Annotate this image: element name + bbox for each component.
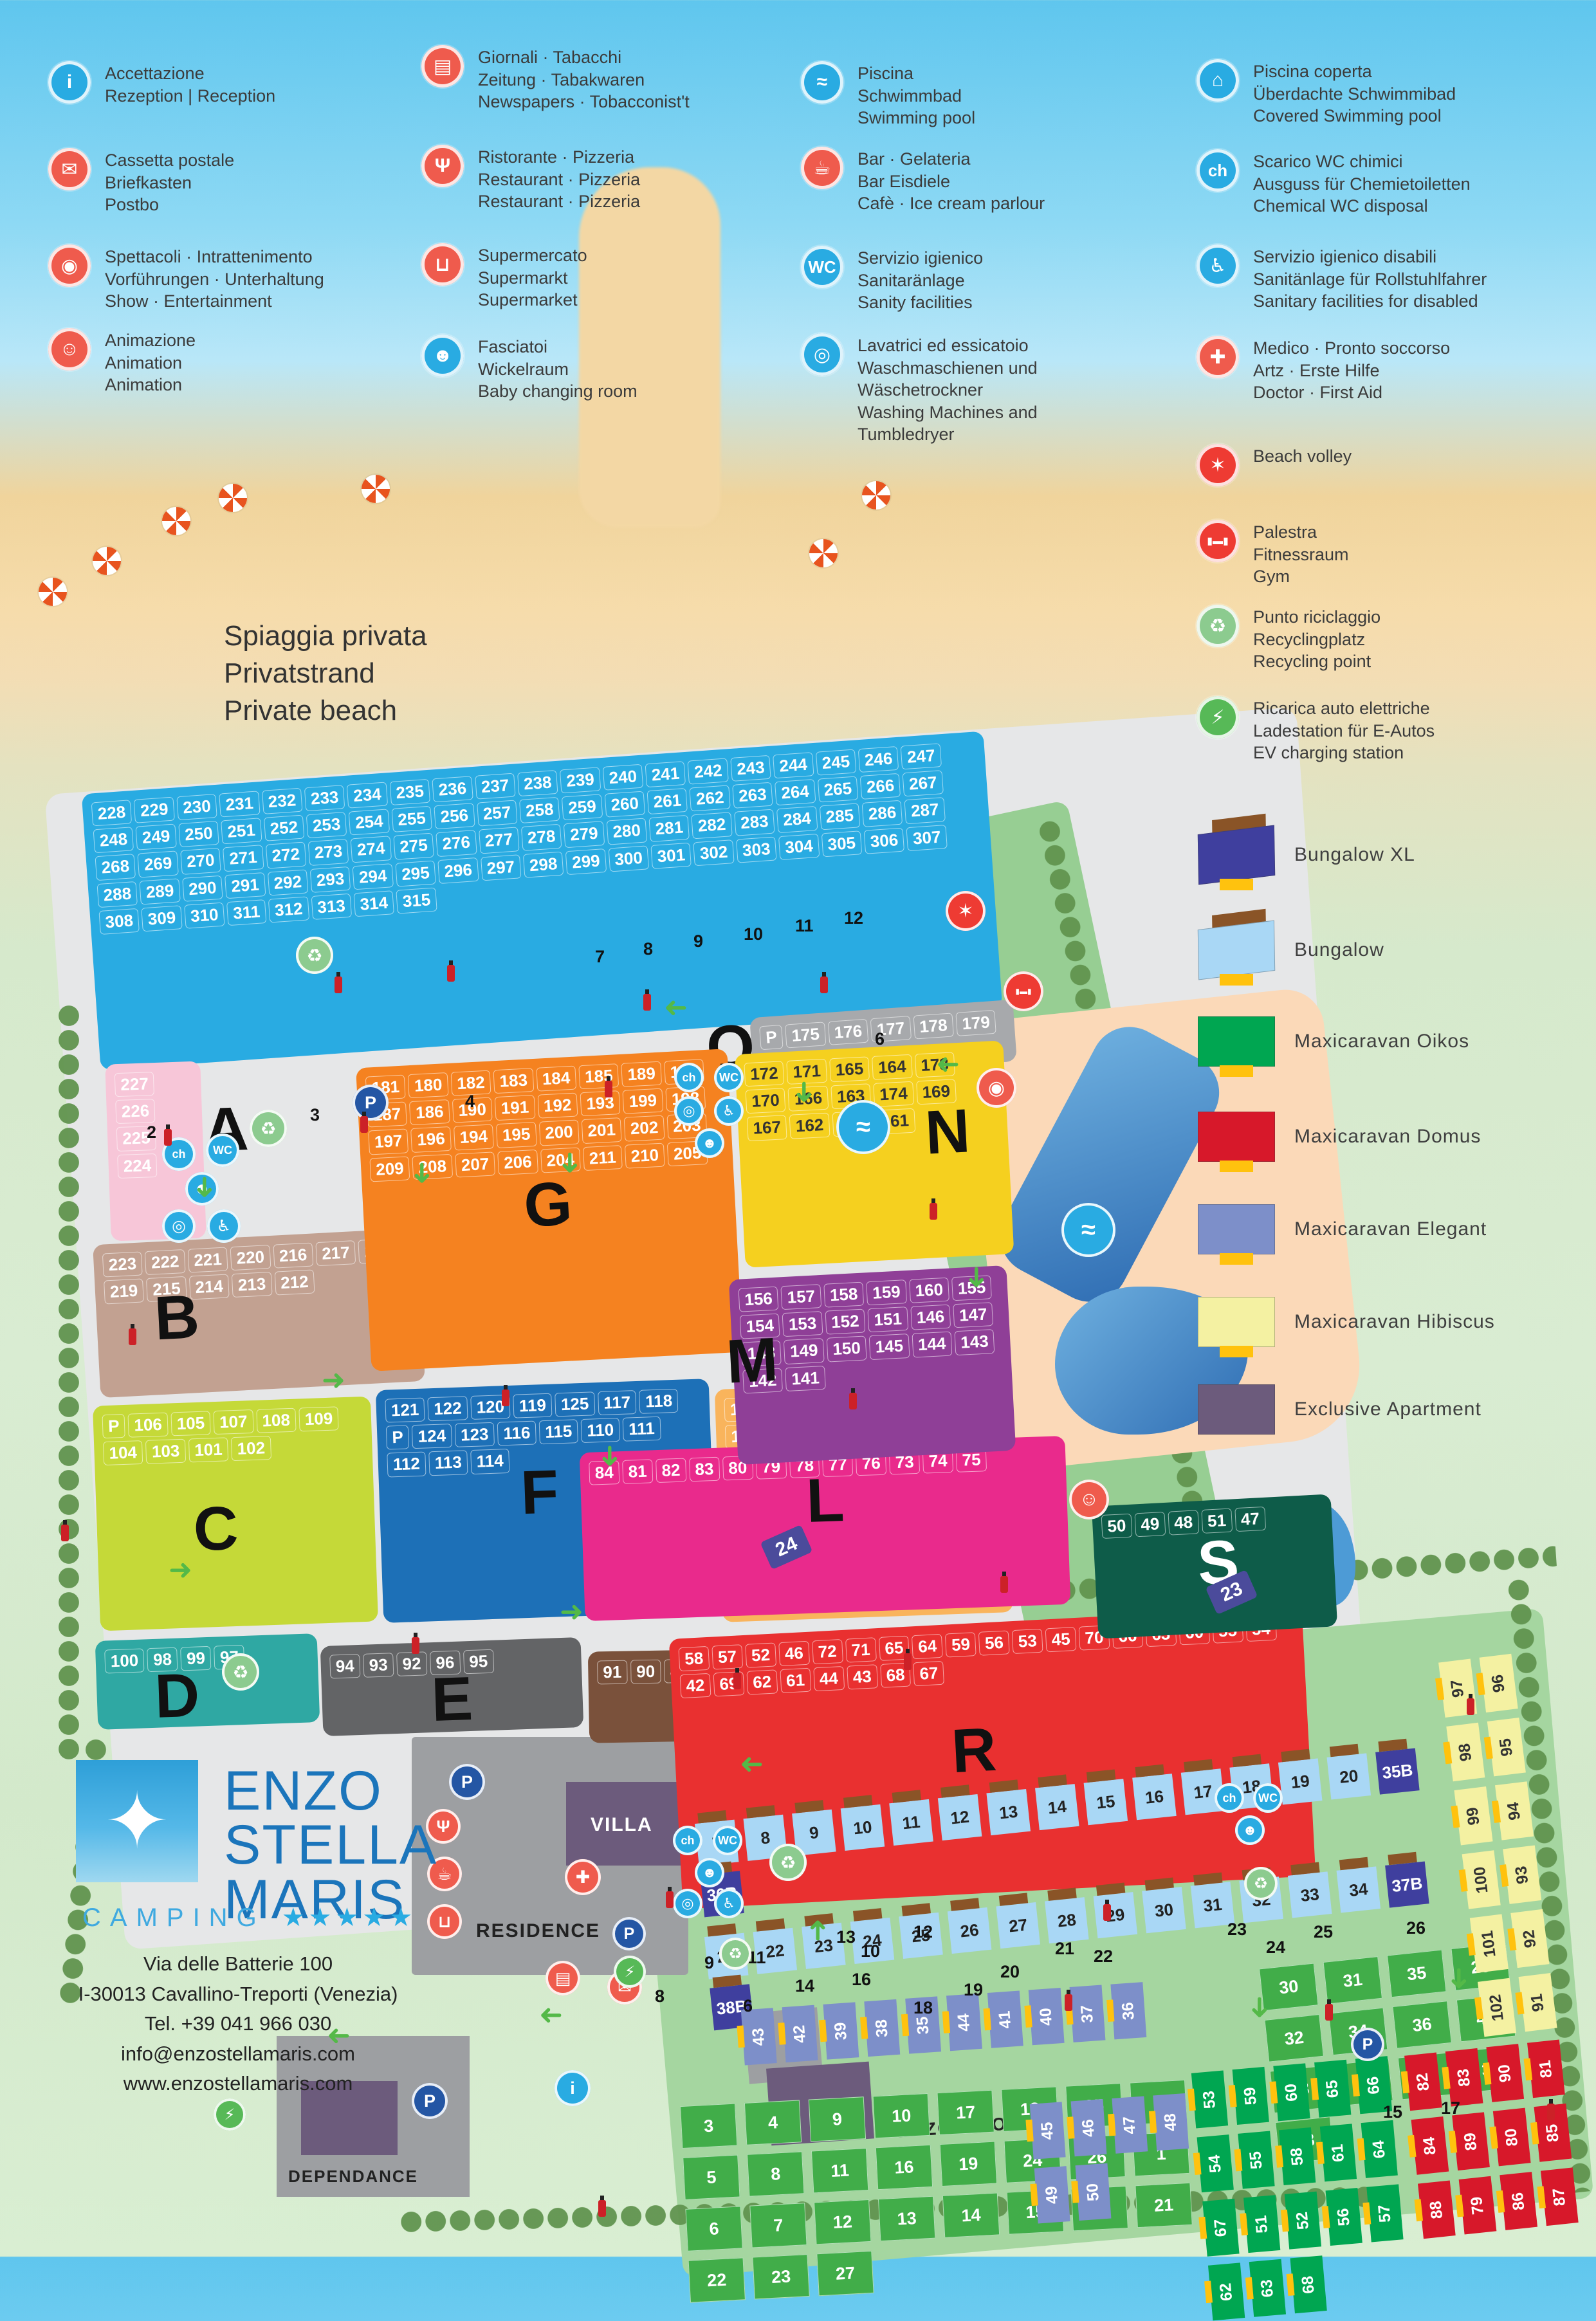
plot-290[interactable]: 290 xyxy=(182,875,223,901)
plot-223[interactable]: 223 xyxy=(102,1251,143,1277)
unit-91[interactable]: 91 xyxy=(1519,1973,1557,2032)
plot-110[interactable]: 110 xyxy=(581,1418,620,1443)
unit-13[interactable]: 13 xyxy=(986,1789,1031,1835)
unit-29[interactable]: 29 xyxy=(1094,1892,1138,1938)
plot-147[interactable]: 147 xyxy=(953,1302,993,1328)
recycle-icon[interactable]: ♻ xyxy=(1244,1867,1278,1900)
plot-217[interactable]: 217 xyxy=(315,1240,356,1266)
plot-279[interactable]: 279 xyxy=(564,821,605,847)
plot-152[interactable]: 152 xyxy=(825,1309,865,1335)
plot-115[interactable]: 115 xyxy=(539,1419,578,1444)
plot-47[interactable]: 47 xyxy=(1234,1507,1266,1532)
unit-5[interactable]: 5 xyxy=(683,2155,740,2200)
plot-61[interactable]: 61 xyxy=(780,1668,811,1694)
plot-53[interactable]: 53 xyxy=(1012,1629,1043,1655)
plot-245[interactable]: 245 xyxy=(816,749,857,776)
plot-259[interactable]: 259 xyxy=(562,794,603,820)
plot-251[interactable]: 251 xyxy=(221,818,262,844)
plot-310[interactable]: 310 xyxy=(184,902,225,928)
unit-86[interactable]: 86 xyxy=(1500,2172,1537,2230)
animation-icon[interactable]: ☺ xyxy=(1069,1480,1109,1519)
plot-194[interactable]: 194 xyxy=(454,1124,494,1150)
unit-30[interactable]: 30 xyxy=(1142,1887,1186,1933)
unit-12[interactable]: 12 xyxy=(938,1794,982,1840)
plot-308[interactable]: 308 xyxy=(98,908,140,935)
plot-90[interactable]: 90 xyxy=(630,1660,661,1684)
plot-107[interactable]: 107 xyxy=(214,1409,254,1435)
plot-172[interactable]: 172 xyxy=(744,1061,784,1087)
unit-9[interactable]: 9 xyxy=(809,2096,866,2142)
unit-61[interactable]: 61 xyxy=(1320,2124,1357,2181)
plot-186[interactable]: 186 xyxy=(409,1099,450,1125)
plot-214[interactable]: 214 xyxy=(189,1274,230,1300)
plot-104[interactable]: 104 xyxy=(103,1440,143,1465)
unit-8[interactable]: 8 xyxy=(747,2151,804,2196)
plot-165[interactable]: 165 xyxy=(829,1056,870,1082)
unit-32[interactable]: 32 xyxy=(1264,2014,1323,2062)
plot-293[interactable]: 293 xyxy=(310,866,351,892)
unit-101[interactable]: 101 xyxy=(1470,1914,1509,1973)
plot-116[interactable]: 116 xyxy=(497,1421,537,1446)
plot-206[interactable]: 206 xyxy=(497,1149,538,1175)
plot-112[interactable]: 112 xyxy=(387,1452,426,1477)
unit-99[interactable]: 99 xyxy=(1454,1786,1492,1845)
unit-89[interactable]: 89 xyxy=(1452,2112,1490,2170)
unit-94[interactable]: 94 xyxy=(1495,1781,1534,1840)
parking-icon[interactable]: P xyxy=(612,1917,646,1950)
unit-52[interactable]: 52 xyxy=(1285,2192,1321,2250)
plot-253[interactable]: 253 xyxy=(306,812,347,838)
plot-193[interactable]: 193 xyxy=(580,1090,620,1116)
unit-4[interactable]: 4 xyxy=(744,2100,802,2145)
plot-106[interactable]: 106 xyxy=(128,1413,169,1438)
unit-84[interactable]: 84 xyxy=(1411,2116,1449,2175)
unit-37[interactable]: 37 xyxy=(1070,1985,1106,2042)
unit-60[interactable]: 60 xyxy=(1273,2063,1310,2121)
parking-icon[interactable]: P xyxy=(353,1085,389,1121)
plot-96[interactable]: 96 xyxy=(430,1651,461,1676)
plot-289[interactable]: 289 xyxy=(140,878,181,904)
recycle-icon[interactable]: ♻ xyxy=(222,1653,259,1691)
plot-216[interactable]: 216 xyxy=(273,1243,313,1269)
plot-111[interactable]: 111 xyxy=(623,1417,661,1442)
unit-13[interactable]: 13 xyxy=(878,2196,935,2241)
plot-288[interactable]: 288 xyxy=(96,881,138,907)
plot-313[interactable]: 313 xyxy=(311,894,352,920)
unit-16[interactable]: 16 xyxy=(1132,1774,1177,1820)
unit-36[interactable]: 36 xyxy=(1392,2001,1451,2049)
plot-256[interactable]: 256 xyxy=(434,803,475,829)
plot-282[interactable]: 282 xyxy=(692,812,733,839)
plot-273[interactable]: 273 xyxy=(308,839,349,865)
unit-19[interactable]: 19 xyxy=(1278,1758,1323,1804)
unit-95[interactable]: 95 xyxy=(1487,1718,1526,1776)
wc-icon[interactable]: WC xyxy=(714,1063,744,1092)
plot-271[interactable]: 271 xyxy=(223,845,264,872)
plot-229[interactable]: 229 xyxy=(134,797,175,823)
unit-40[interactable]: 40 xyxy=(1029,1988,1065,2045)
plot-272[interactable]: 272 xyxy=(265,842,306,868)
plot-228[interactable]: 228 xyxy=(91,800,133,826)
plot-143[interactable]: 143 xyxy=(954,1329,995,1355)
unit-96[interactable]: 96 xyxy=(1480,1654,1518,1712)
plot-291[interactable]: 291 xyxy=(225,872,266,899)
plot-215[interactable]: 215 xyxy=(146,1276,187,1302)
plot-113[interactable]: 113 xyxy=(428,1451,468,1476)
plot-221[interactable]: 221 xyxy=(187,1247,228,1272)
plot-175[interactable]: 175 xyxy=(785,1022,826,1048)
unit-93[interactable]: 93 xyxy=(1503,1845,1541,1904)
plot-71[interactable]: 71 xyxy=(845,1637,877,1663)
plot-160[interactable]: 160 xyxy=(909,1278,949,1303)
unit-10[interactable]: 10 xyxy=(873,2093,930,2138)
plot-265[interactable]: 265 xyxy=(817,776,858,803)
plot-276[interactable]: 276 xyxy=(436,830,477,856)
plot-125[interactable]: 125 xyxy=(555,1391,595,1417)
plot-124[interactable]: 124 xyxy=(412,1424,452,1449)
unit-53[interactable]: 53 xyxy=(1191,2070,1228,2128)
pool-icon[interactable]: ≈ xyxy=(836,1100,890,1154)
plot-257[interactable]: 257 xyxy=(477,800,518,827)
unit-49[interactable]: 49 xyxy=(1034,2166,1070,2223)
plot-164[interactable]: 164 xyxy=(872,1054,912,1080)
unit-27[interactable]: 27 xyxy=(996,1902,1040,1949)
plot-254[interactable]: 254 xyxy=(349,809,390,836)
unit-59[interactable]: 59 xyxy=(1233,2067,1269,2125)
plot-57[interactable]: 57 xyxy=(711,1644,743,1670)
plot-98[interactable]: 98 xyxy=(147,1647,178,1673)
zone-N[interactable]: 1721711651641731701661631741691671621681… xyxy=(735,1040,1014,1267)
plot-239[interactable]: 239 xyxy=(560,767,601,793)
unit-11[interactable]: 11 xyxy=(889,1799,933,1846)
plot-94[interactable]: 94 xyxy=(329,1654,360,1679)
plot-242[interactable]: 242 xyxy=(688,758,729,784)
plot-300[interactable]: 300 xyxy=(608,845,649,872)
baby-icon[interactable]: ☻ xyxy=(695,1128,724,1158)
unit-81[interactable]: 81 xyxy=(1527,2039,1565,2098)
plot-178[interactable]: 178 xyxy=(913,1013,954,1039)
plot-224[interactable]: 224 xyxy=(117,1153,158,1179)
plot-101[interactable]: 101 xyxy=(188,1438,229,1463)
laundry-icon[interactable]: ◎ xyxy=(673,1889,702,1918)
plot-305[interactable]: 305 xyxy=(821,830,862,857)
unit-7[interactable]: 7 xyxy=(749,2203,807,2248)
plot-150[interactable]: 150 xyxy=(826,1336,867,1362)
plot-303[interactable]: 303 xyxy=(736,836,777,863)
laundry-icon[interactable]: ◎ xyxy=(674,1096,704,1126)
parking-icon[interactable]: P xyxy=(449,1764,485,1800)
recycle-icon[interactable]: ♻ xyxy=(296,937,333,974)
plot-153[interactable]: 153 xyxy=(782,1311,823,1337)
plot-191[interactable]: 191 xyxy=(495,1095,535,1121)
laundry-icon[interactable]: ◎ xyxy=(162,1209,196,1243)
plot-169[interactable]: 169 xyxy=(916,1079,957,1105)
plot-148[interactable]: 148 xyxy=(741,1341,782,1366)
plot-42[interactable]: 42 xyxy=(680,1673,711,1699)
plot-277[interactable]: 277 xyxy=(479,827,520,854)
plot-244[interactable]: 244 xyxy=(773,752,814,778)
plot-95[interactable]: 95 xyxy=(463,1649,494,1674)
unit-39[interactable]: 39 xyxy=(823,2002,859,2059)
plot-283[interactable]: 283 xyxy=(734,809,775,836)
unit-6[interactable]: 6 xyxy=(685,2206,742,2251)
unit-44[interactable]: 44 xyxy=(946,1994,982,2051)
plot-52[interactable]: 52 xyxy=(745,1642,776,1668)
plot-266[interactable]: 266 xyxy=(860,773,901,800)
plot-108[interactable]: 108 xyxy=(256,1408,297,1433)
show-icon[interactable]: ◉ xyxy=(977,1068,1016,1108)
plot-56[interactable]: 56 xyxy=(978,1630,1010,1656)
chemical-icon[interactable]: ch xyxy=(1215,1783,1244,1813)
plot-184[interactable]: 184 xyxy=(536,1066,576,1092)
plot-199[interactable]: 199 xyxy=(623,1088,663,1114)
unit-46[interactable]: 46 xyxy=(1071,2099,1107,2156)
unit-67[interactable]: 67 xyxy=(1202,2199,1239,2257)
unit-62[interactable]: 62 xyxy=(1208,2262,1245,2320)
unit-92[interactable]: 92 xyxy=(1510,1909,1549,1968)
plot-278[interactable]: 278 xyxy=(521,824,562,850)
plot-292[interactable]: 292 xyxy=(267,869,308,895)
unit-48[interactable]: 48 xyxy=(1153,2093,1189,2151)
volley-icon[interactable]: ✶ xyxy=(946,891,986,931)
unit-54[interactable]: 54 xyxy=(1197,2134,1234,2192)
plot-P[interactable]: P xyxy=(102,1414,126,1438)
unit-55[interactable]: 55 xyxy=(1238,2131,1274,2189)
unit-35[interactable]: 35 xyxy=(1387,1950,1446,1998)
disabled-icon[interactable]: ♿ xyxy=(207,1209,241,1243)
unit-16[interactable]: 16 xyxy=(876,2145,933,2190)
pool-icon[interactable]: ≈ xyxy=(1061,1203,1115,1257)
plot-P[interactable]: P xyxy=(386,1426,410,1450)
plot-258[interactable]: 258 xyxy=(519,797,560,823)
plot-62[interactable]: 62 xyxy=(746,1670,778,1696)
plot-197[interactable]: 197 xyxy=(368,1129,408,1155)
unit-17[interactable]: 17 xyxy=(937,2090,994,2135)
unit-42[interactable]: 42 xyxy=(782,2005,818,2062)
plot-46[interactable]: 46 xyxy=(778,1641,810,1667)
plot-299[interactable]: 299 xyxy=(565,849,607,875)
plot-154[interactable]: 154 xyxy=(740,1314,780,1339)
plot-294[interactable]: 294 xyxy=(353,863,394,890)
plot-207[interactable]: 207 xyxy=(455,1151,495,1177)
unit-35B[interactable]: 35B xyxy=(1375,1748,1420,1794)
plot-263[interactable]: 263 xyxy=(732,782,773,809)
plot-162[interactable]: 162 xyxy=(789,1113,830,1139)
plot-118[interactable]: 118 xyxy=(639,1389,679,1414)
plot-222[interactable]: 222 xyxy=(145,1249,185,1275)
chemical-icon[interactable]: ch xyxy=(673,1826,702,1855)
plot-45[interactable]: 45 xyxy=(1045,1627,1077,1653)
plot-237[interactable]: 237 xyxy=(475,773,516,800)
plot-149[interactable]: 149 xyxy=(784,1338,824,1364)
unit-56[interactable]: 56 xyxy=(1326,2188,1362,2246)
plot-232[interactable]: 232 xyxy=(262,788,303,814)
wc-icon[interactable]: WC xyxy=(206,1133,239,1167)
plot-306[interactable]: 306 xyxy=(864,827,905,854)
plot-119[interactable]: 119 xyxy=(513,1393,552,1418)
unit-19[interactable]: 19 xyxy=(940,2142,997,2187)
wc-icon[interactable]: WC xyxy=(1253,1783,1283,1813)
wc-icon[interactable]: WC xyxy=(713,1826,742,1855)
plot-230[interactable]: 230 xyxy=(176,794,217,820)
unit-102[interactable]: 102 xyxy=(1478,1978,1516,2037)
unit-37B[interactable]: 37B xyxy=(1385,1861,1429,1907)
plot-174[interactable]: 174 xyxy=(873,1081,913,1107)
plot-285[interactable]: 285 xyxy=(819,803,860,830)
plot-83[interactable]: 83 xyxy=(689,1457,720,1482)
plot-156[interactable]: 156 xyxy=(738,1287,778,1312)
unit-47[interactable]: 47 xyxy=(1112,2096,1148,2153)
unit-45[interactable]: 45 xyxy=(1030,2102,1066,2159)
recycle-icon[interactable]: ♻ xyxy=(719,1938,751,1970)
plot-144[interactable]: 144 xyxy=(912,1332,952,1357)
plot-170[interactable]: 170 xyxy=(746,1088,786,1114)
unit-98[interactable]: 98 xyxy=(1446,1723,1485,1781)
plot-260[interactable]: 260 xyxy=(604,791,645,818)
unit-15[interactable]: 15 xyxy=(1084,1779,1128,1825)
unit-31[interactable]: 31 xyxy=(1323,1956,1382,2004)
unit-80[interactable]: 80 xyxy=(1493,2108,1531,2167)
plot-93[interactable]: 93 xyxy=(363,1653,394,1678)
unit-22[interactable]: 22 xyxy=(688,2257,746,2302)
plot-114[interactable]: 114 xyxy=(470,1449,509,1474)
plot-234[interactable]: 234 xyxy=(347,782,388,808)
plot-236[interactable]: 236 xyxy=(432,776,473,802)
plot-105[interactable]: 105 xyxy=(170,1411,211,1436)
plot-284[interactable]: 284 xyxy=(776,806,818,832)
plot-246[interactable]: 246 xyxy=(858,746,899,773)
plot-233[interactable]: 233 xyxy=(304,785,345,811)
plot-142[interactable]: 142 xyxy=(742,1368,783,1393)
plot-51[interactable]: 51 xyxy=(1201,1509,1233,1534)
plot-P[interactable]: P xyxy=(759,1025,784,1050)
unit-28[interactable]: 28 xyxy=(1045,1897,1089,1943)
unit-23[interactable]: 23 xyxy=(752,2254,809,2299)
plot-202[interactable]: 202 xyxy=(624,1115,665,1141)
plot-297[interactable]: 297 xyxy=(481,854,522,881)
unit-88[interactable]: 88 xyxy=(1418,2180,1456,2239)
unit-38[interactable]: 38 xyxy=(864,1999,900,2057)
plot-255[interactable]: 255 xyxy=(391,806,432,832)
plot-220[interactable]: 220 xyxy=(230,1245,271,1271)
plot-103[interactable]: 103 xyxy=(145,1439,186,1464)
plot-281[interactable]: 281 xyxy=(649,815,690,841)
plot-212[interactable]: 212 xyxy=(274,1270,315,1296)
unit-43[interactable]: 43 xyxy=(741,2008,777,2065)
news-icon[interactable]: ▤ xyxy=(546,1961,580,1995)
zone-E[interactable]: 9493929695E xyxy=(320,1637,584,1736)
plot-274[interactable]: 274 xyxy=(351,836,392,863)
recycle-icon[interactable]: ♻ xyxy=(769,1844,807,1881)
plot-301[interactable]: 301 xyxy=(650,842,692,868)
plot-241[interactable]: 241 xyxy=(645,761,686,787)
plot-261[interactable]: 261 xyxy=(647,788,688,814)
plot-121[interactable]: 121 xyxy=(385,1398,425,1423)
plot-227[interactable]: 227 xyxy=(115,1072,155,1097)
plot-287[interactable]: 287 xyxy=(904,797,946,823)
plot-235[interactable]: 235 xyxy=(389,779,430,805)
plot-196[interactable]: 196 xyxy=(410,1126,451,1152)
plot-226[interactable]: 226 xyxy=(115,1099,156,1124)
plot-195[interactable]: 195 xyxy=(496,1122,537,1148)
unit-90[interactable]: 90 xyxy=(1486,2044,1524,2102)
plot-92[interactable]: 92 xyxy=(396,1651,427,1676)
plot-210[interactable]: 210 xyxy=(625,1142,665,1168)
baby-icon[interactable]: ☻ xyxy=(695,1858,724,1887)
ev-icon[interactable]: ⚡ xyxy=(614,1956,646,1988)
plot-296[interactable]: 296 xyxy=(437,857,479,883)
unit-3[interactable]: 3 xyxy=(680,2104,737,2149)
plot-180[interactable]: 180 xyxy=(408,1072,448,1098)
plot-248[interactable]: 248 xyxy=(93,827,134,853)
plot-302[interactable]: 302 xyxy=(693,839,735,866)
plot-109[interactable]: 109 xyxy=(298,1406,339,1431)
plot-209[interactable]: 209 xyxy=(369,1156,410,1182)
unit-58[interactable]: 58 xyxy=(1279,2127,1316,2185)
unit-27[interactable]: 27 xyxy=(816,2251,874,2296)
plot-247[interactable]: 247 xyxy=(901,743,942,769)
plot-200[interactable]: 200 xyxy=(538,1120,579,1146)
plot-185[interactable]: 185 xyxy=(578,1063,619,1089)
unit-26[interactable]: 26 xyxy=(948,1907,992,1954)
plot-141[interactable]: 141 xyxy=(785,1365,825,1391)
plot-314[interactable]: 314 xyxy=(353,890,394,917)
unit-64[interactable]: 64 xyxy=(1361,2120,1398,2178)
unit-11[interactable]: 11 xyxy=(811,2148,868,2193)
plot-64[interactable]: 64 xyxy=(912,1634,943,1660)
plot-269[interactable]: 269 xyxy=(138,851,179,877)
plot-58[interactable]: 58 xyxy=(678,1646,710,1672)
plot-99[interactable]: 99 xyxy=(180,1646,211,1671)
unit-63[interactable]: 63 xyxy=(1249,2259,1286,2317)
plot-270[interactable]: 270 xyxy=(180,848,221,874)
unit-14[interactable]: 14 xyxy=(942,2192,1000,2237)
plot-311[interactable]: 311 xyxy=(226,899,266,926)
plot-304[interactable]: 304 xyxy=(778,833,820,859)
plot-100[interactable]: 100 xyxy=(104,1648,145,1673)
baby-icon[interactable]: ☻ xyxy=(1235,1815,1265,1845)
plot-211[interactable]: 211 xyxy=(583,1145,623,1171)
unit-65[interactable]: 65 xyxy=(1314,2060,1351,2118)
zone-L[interactable]: 848182838079787776737475L xyxy=(580,1436,1071,1621)
unit-34[interactable]: 34 xyxy=(1337,1866,1381,1913)
plot-49[interactable]: 49 xyxy=(1134,1512,1166,1537)
unit-10[interactable]: 10 xyxy=(841,1804,885,1851)
unit-12[interactable]: 12 xyxy=(814,2199,871,2244)
zone-S[interactable]: 5049485147S xyxy=(1092,1494,1337,1638)
plot-189[interactable]: 189 xyxy=(621,1061,662,1087)
unit-82[interactable]: 82 xyxy=(1404,2053,1442,2111)
plot-102[interactable]: 102 xyxy=(231,1436,271,1461)
plot-268[interactable]: 268 xyxy=(95,854,136,880)
plot-72[interactable]: 72 xyxy=(812,1639,843,1665)
chemical-icon[interactable]: ch xyxy=(674,1063,704,1092)
plot-309[interactable]: 309 xyxy=(142,905,183,931)
plot-122[interactable]: 122 xyxy=(428,1396,468,1421)
plot-295[interactable]: 295 xyxy=(395,860,436,886)
plot-262[interactable]: 262 xyxy=(690,785,731,811)
zone-D[interactable]: 100989997D xyxy=(95,1633,320,1730)
plot-201[interactable]: 201 xyxy=(582,1117,622,1143)
plot-286[interactable]: 286 xyxy=(862,800,903,827)
gym-icon[interactable]: ▮▬▮ xyxy=(1004,971,1043,1011)
recycle-icon[interactable]: ♻ xyxy=(250,1110,287,1147)
plot-158[interactable]: 158 xyxy=(823,1282,864,1308)
unit-33[interactable]: 33 xyxy=(1288,1871,1332,1918)
unit-36[interactable]: 36 xyxy=(1110,1982,1146,2039)
plot-81[interactable]: 81 xyxy=(622,1459,653,1484)
disabled-icon[interactable]: ♿ xyxy=(714,1096,744,1126)
